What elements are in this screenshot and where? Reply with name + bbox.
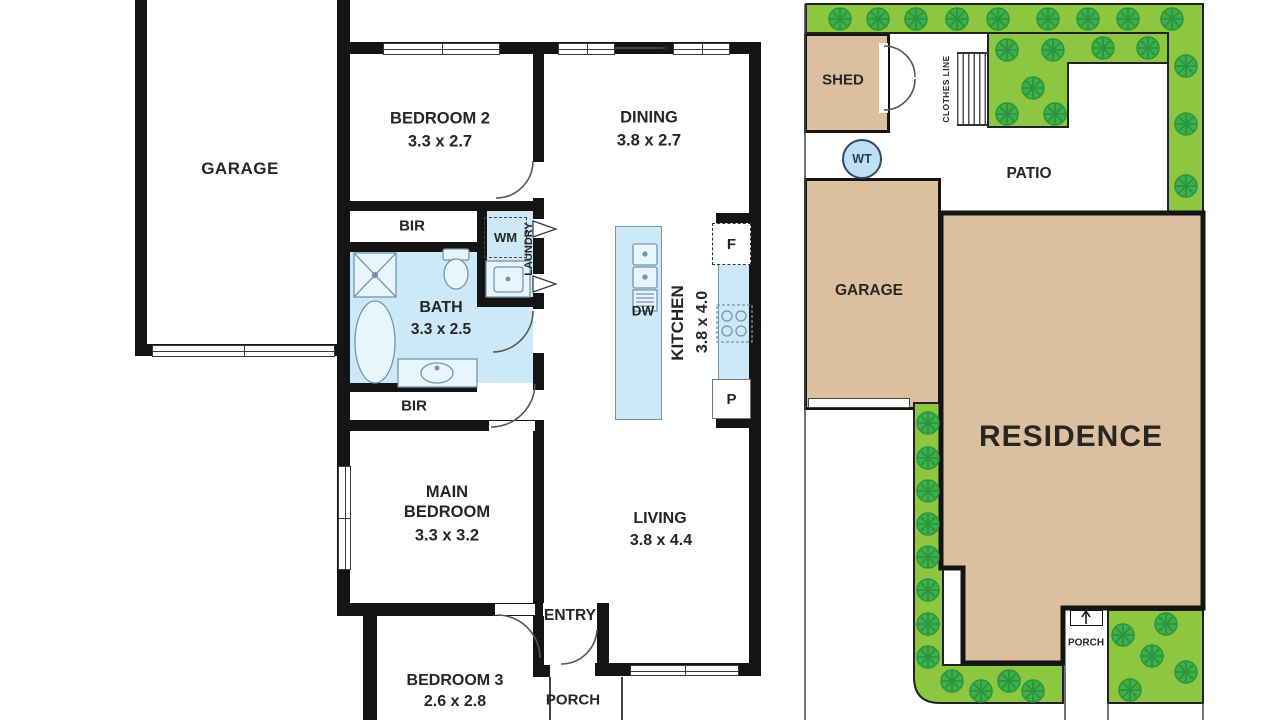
door-arc (496, 161, 533, 198)
wall (363, 616, 377, 720)
fridge-box: F (712, 223, 751, 265)
window (630, 665, 739, 676)
tree-icon (829, 8, 851, 30)
site-garage-label: GARAGE (835, 282, 903, 300)
residence-label: RESIDENCE (979, 420, 1163, 454)
tree-icon (1137, 37, 1159, 59)
wall (345, 201, 544, 211)
tree-icon (996, 103, 1018, 125)
clothes-line-label: CLOTHES LINE (941, 55, 951, 122)
bir-bottom-label: BIR (401, 398, 427, 415)
water-tank-icon: WT (842, 139, 882, 179)
fridge-label: F (727, 236, 736, 253)
wall (533, 42, 544, 162)
tree-icon (1044, 103, 1066, 125)
tree-icon (1175, 113, 1197, 135)
main-bedroom-label: MAIN BEDROOM (391, 482, 503, 522)
tree-icon (1117, 8, 1139, 30)
tree-icon (1037, 8, 1059, 30)
tree-icon (1161, 8, 1183, 30)
sill-marker (663, 45, 669, 51)
tree-icon (917, 513, 939, 535)
water-tank-label: WT (852, 152, 871, 166)
dining-label: DINING (620, 109, 678, 128)
tree-icon (917, 412, 939, 434)
window (673, 43, 730, 55)
garden-bottom-right (1108, 610, 1203, 703)
entry-label: ENTRY (544, 607, 596, 625)
tree-icon (917, 579, 939, 601)
tree-icon (998, 670, 1020, 692)
shed-door-opening (879, 43, 888, 113)
garden-inner-l (988, 33, 1168, 127)
tree-icon (970, 680, 992, 702)
bath-dims: 3.3 x 2.5 (411, 321, 471, 339)
tree-icon (1022, 680, 1044, 702)
bedroom2-label: BEDROOM 2 (390, 110, 490, 129)
laundry-label: LAUNDRY (523, 222, 535, 275)
main-bedroom-dims: 3.3 x 3.2 (415, 527, 479, 546)
dining-dims: 3.8 x 2.7 (617, 132, 681, 151)
wall (533, 420, 544, 603)
site-porch-label: PORCH (1068, 638, 1104, 649)
tree-icon (917, 480, 939, 502)
window (338, 466, 351, 570)
tree-icon (905, 8, 927, 30)
tree-icon (917, 613, 939, 635)
tree-icon (1119, 679, 1141, 701)
clothes-line-icon (957, 52, 988, 126)
kitchen-dims: 3.8 x 4.0 (694, 291, 712, 353)
site-shed-label: SHED (822, 72, 864, 89)
porch-label: PORCH (546, 692, 600, 709)
bir-top-label: BIR (399, 218, 425, 235)
tree-icon (996, 39, 1018, 61)
wall (533, 665, 550, 677)
bedroom3-door-opening (495, 604, 535, 615)
tree-icon (1077, 8, 1099, 30)
window (558, 43, 615, 55)
kitchen-island (615, 226, 662, 420)
tree-icon (1175, 175, 1197, 197)
bath-label: BATH (419, 299, 462, 317)
tree-icon (867, 8, 889, 30)
kitchen-counter (718, 264, 753, 382)
tree-icon (1042, 39, 1064, 61)
bedroom2-dims: 3.3 x 2.7 (408, 133, 472, 152)
window-sill-line (615, 47, 668, 49)
floor-plan-page: WM F P WT (0, 0, 1280, 720)
tree-icon (917, 646, 939, 668)
living-dims: 3.8 x 4.4 (630, 532, 692, 550)
tree-icon (917, 546, 939, 568)
tree-icon (941, 670, 963, 692)
tree-icon (1022, 77, 1044, 99)
wall (135, 0, 147, 346)
tree-icon (1141, 645, 1163, 667)
patio-label: PATIO (1006, 165, 1051, 183)
laundry-opening (533, 274, 544, 293)
main-bedroom-door-opening (489, 421, 535, 431)
tree-icon (1175, 55, 1197, 77)
tree-icon (1092, 37, 1114, 59)
tree-icon (987, 8, 1009, 30)
tree-icon (1175, 661, 1197, 683)
bath-door-opening (533, 309, 544, 353)
washing-machine-box: WM (484, 217, 527, 258)
wall (597, 603, 609, 665)
tree-icon (1112, 624, 1134, 646)
wall (345, 242, 477, 252)
tree-icon (946, 8, 968, 30)
wall (345, 383, 477, 392)
bedroom3-dims: 2.6 x 2.8 (424, 693, 486, 711)
pantry-box: P (712, 379, 751, 419)
garage-door (152, 345, 335, 357)
pantry-label: P (726, 391, 736, 408)
porch-stoop (1070, 610, 1103, 626)
porch-line (621, 677, 623, 720)
washing-machine-label: WM (494, 230, 517, 245)
door-arc (561, 630, 597, 664)
dishwasher-label: DW (632, 304, 655, 319)
site-garage-door (808, 398, 910, 408)
tree-icon (917, 447, 939, 469)
garage-label: GARAGE (201, 159, 279, 179)
kitchen-label: KITCHEN (668, 285, 688, 361)
bedroom3-label: BEDROOM 3 (407, 672, 504, 690)
living-label: LIVING (633, 510, 686, 528)
window (383, 43, 500, 55)
wall (749, 42, 761, 676)
tree-icon (1155, 613, 1177, 635)
